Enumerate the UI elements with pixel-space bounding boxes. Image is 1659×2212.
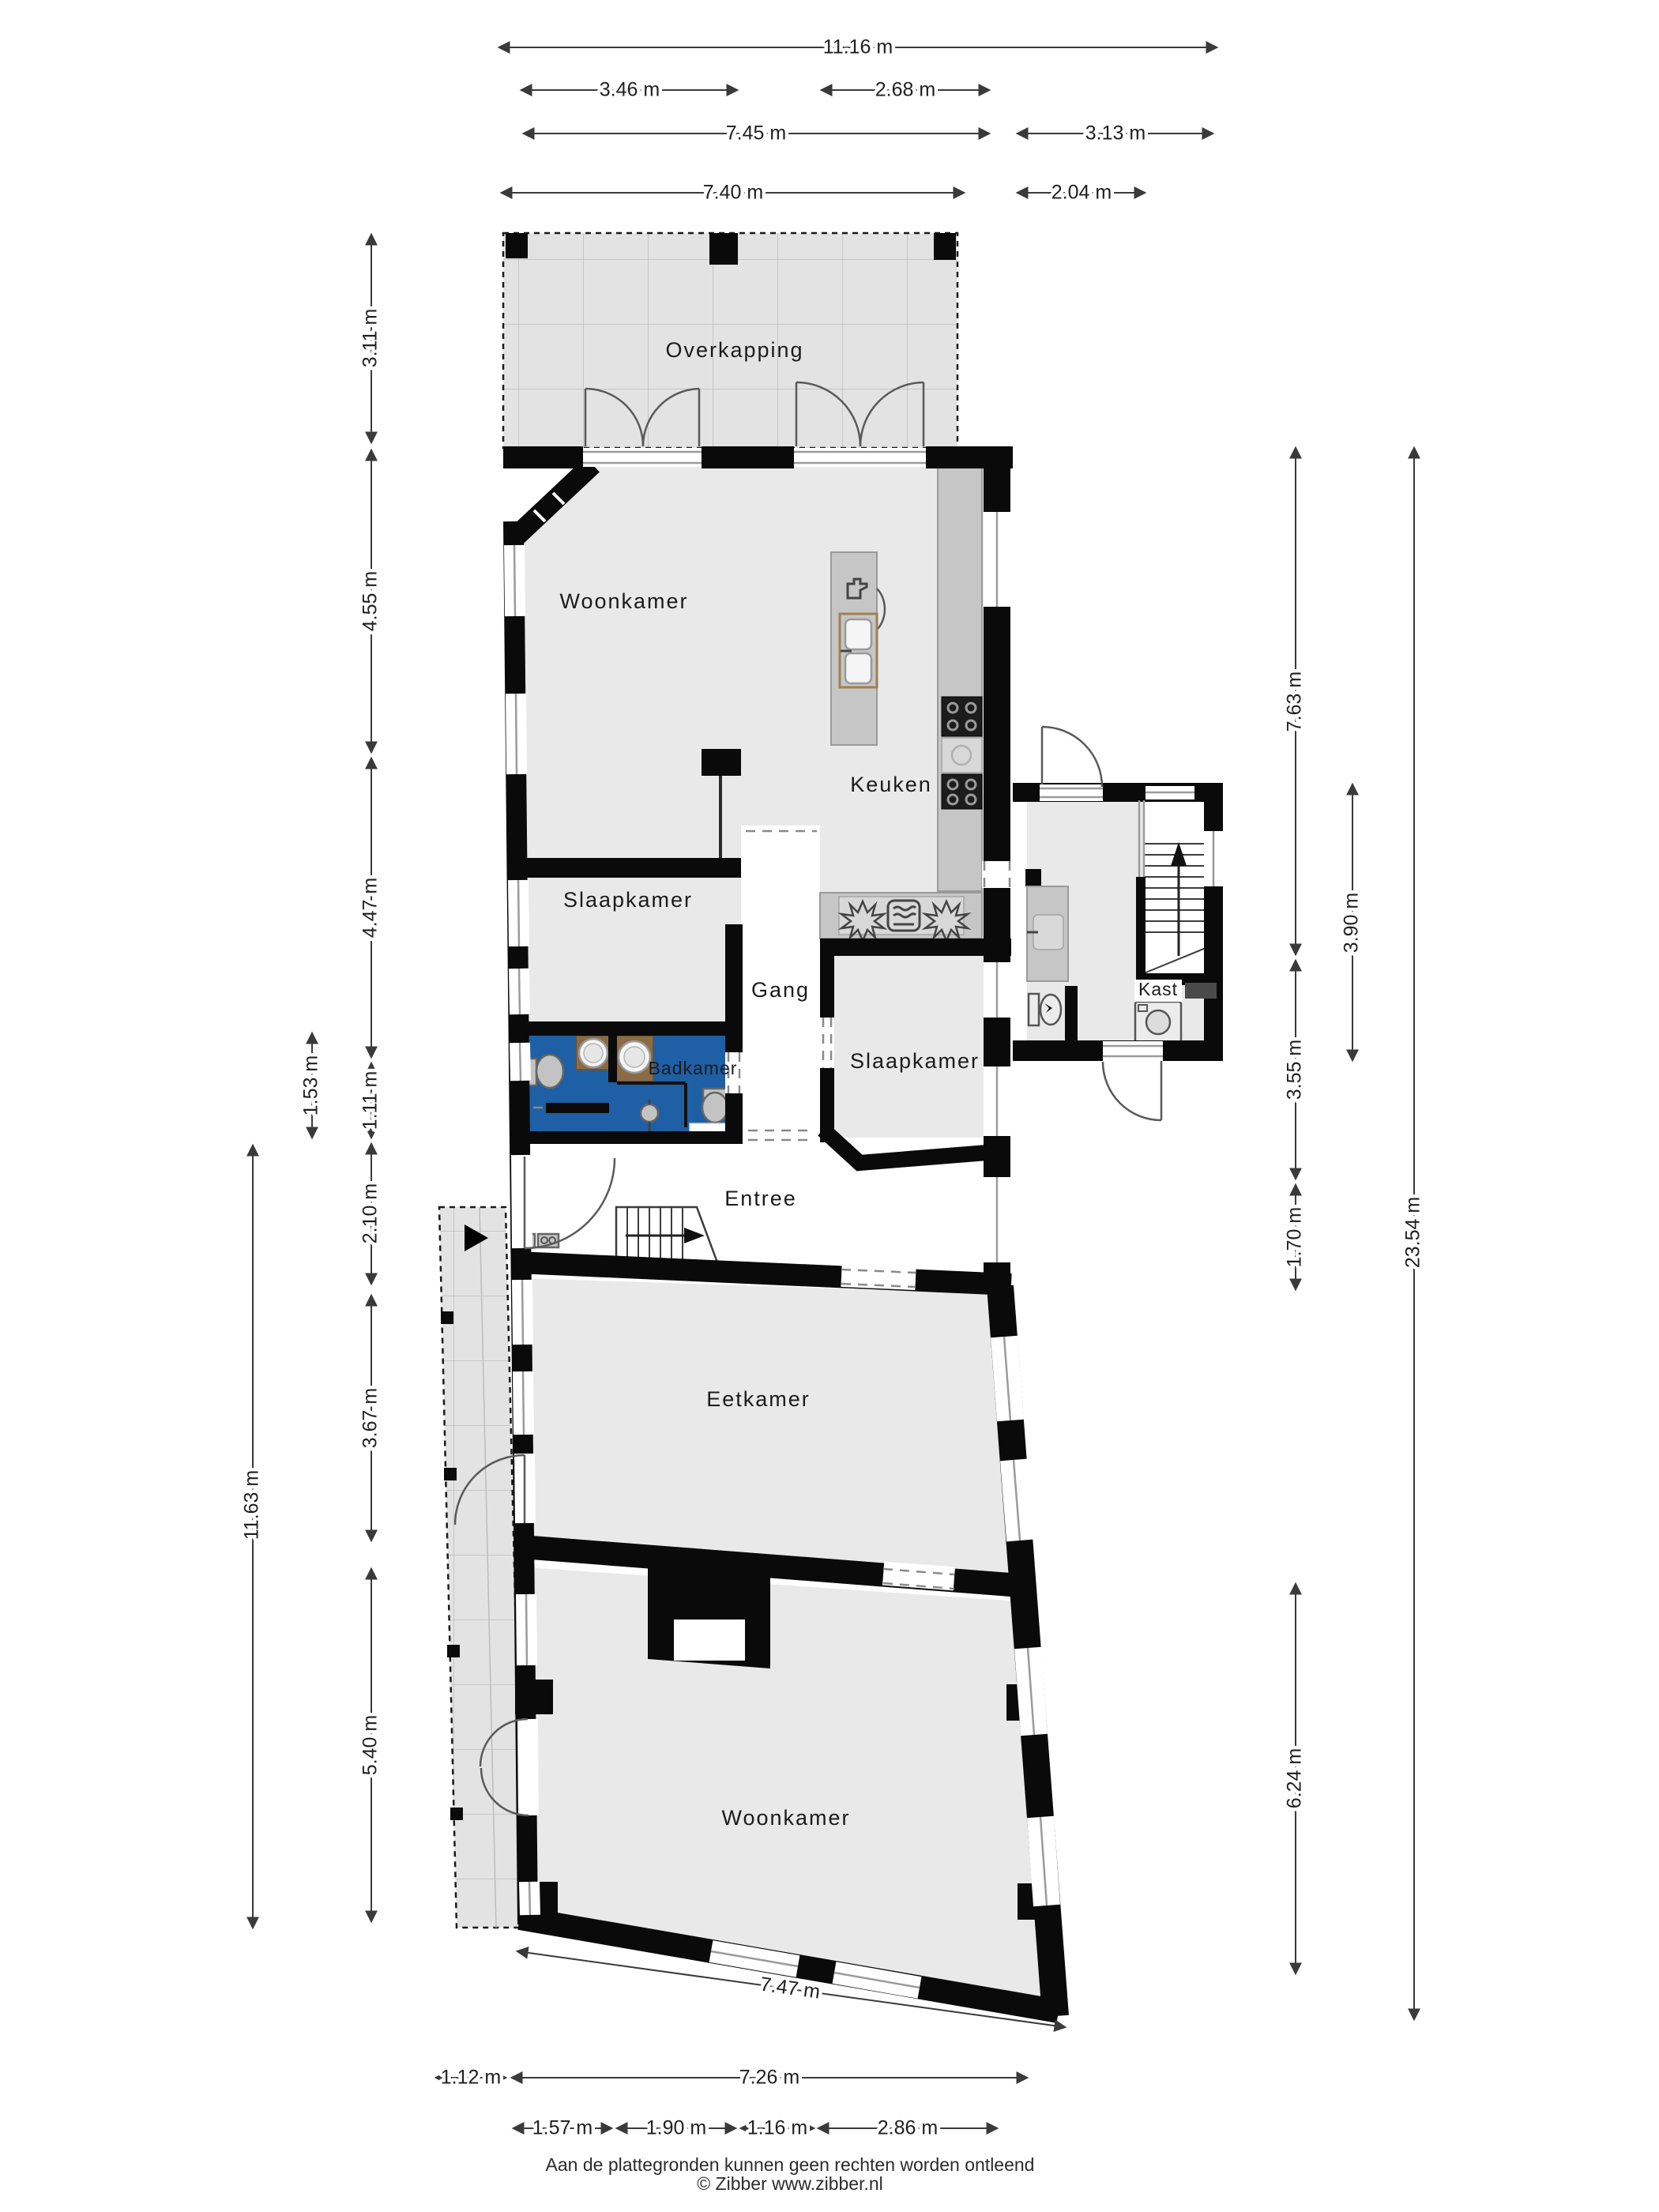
dimension-label: 2.86 m [878, 2117, 938, 2139]
open-passage [984, 861, 1010, 888]
room-label-gang: Gang [751, 978, 810, 1002]
dimension: 7.40 m [502, 182, 964, 204]
window [711, 1951, 798, 1966]
room-label-slaapkamer-links: Slaapkamer [563, 888, 693, 912]
window [520, 1043, 521, 1081]
dimension-label: 7.45 m [726, 122, 786, 145]
dimension: 3.46 m [521, 79, 737, 101]
dimension: 11.63 m [241, 1145, 263, 1928]
window [1028, 1648, 1034, 1735]
toilet-icon [702, 1089, 728, 1123]
dimension: 4.47 m [359, 758, 382, 1057]
disclaimer-text: Aan de plattegronden kunnen geen rechten… [546, 2154, 1035, 2175]
dimension-label: 1.57 m [532, 2117, 592, 2139]
dimension: 1.70 m [1284, 1185, 1306, 1289]
dimension: 2.10 m [359, 1144, 382, 1284]
washing-machine-icon [1135, 1002, 1181, 1043]
dimension: 3.90 m [1341, 784, 1363, 1060]
washbasin-icon [576, 1036, 611, 1070]
counter-sink-icon [942, 738, 982, 773]
dimension-label: 3.13 m [1085, 122, 1145, 145]
dimension-label: 4.47 m [359, 878, 382, 938]
room-label-woonkamer-boven: Woonkamer [559, 589, 688, 613]
room-label-entree: Entree [724, 1187, 797, 1210]
dimension: 1.12 m [436, 2067, 506, 2089]
dimension: 2.86 m [818, 2117, 997, 2139]
dimension-label: 11.63 m [241, 1470, 263, 1540]
dimension: 1.16 m [741, 2117, 814, 2139]
dimension-label: 6.24 m [1284, 1748, 1306, 1808]
open-passage [748, 1128, 811, 1142]
dimension-label: 1.12 m [441, 2067, 501, 2089]
door-opening [820, 1018, 834, 1068]
canopy-post [709, 233, 738, 265]
kitchen-island [831, 552, 885, 745]
dimension: 3.55 m [1284, 961, 1306, 1179]
window [1014, 1460, 1020, 1540]
back-door [1103, 1041, 1163, 1120]
porch-post [450, 1808, 463, 1820]
room-label-kast: Kast [1138, 979, 1178, 999]
dimension-label: 2.68 m [875, 79, 935, 101]
dimension: 7.26 m [512, 2067, 1027, 2089]
window [1040, 1817, 1047, 1905]
kitchen-counter-bottom [820, 893, 982, 941]
window [514, 545, 515, 616]
stairs-annex [1144, 842, 1213, 975]
dimension-label: 1.90 m [646, 2117, 706, 2139]
dimension-label: 7.40 m [703, 182, 763, 204]
canopy-post [506, 233, 528, 258]
room-label-slaapkamer-rechts: Slaapkamer [850, 1049, 980, 1073]
window [834, 1973, 920, 1988]
dimension-label: 1.70 m [1284, 1207, 1306, 1267]
dimension: 11.16 m [499, 36, 1217, 58]
dimension-label: 5.40 m [359, 1715, 382, 1775]
room-label-overkapping: Overkapping [665, 338, 803, 362]
copyright-text: © Zibber www.zibber.nl [697, 2173, 883, 2194]
dimension-label: 1.11 m [359, 1071, 382, 1130]
canopy-post [934, 233, 956, 260]
back-door [1040, 727, 1103, 801]
cooktop-icon [942, 697, 982, 736]
dimension-label: 4.55 m [359, 571, 382, 631]
dimension: 1.90 m [617, 2117, 735, 2139]
footer: Aan de plattegronden kunnen geen rechten… [546, 2154, 1035, 2194]
fireplace-niche [674, 1619, 745, 1661]
dimensions-top: 11.16 m 3.46 m 2.68 m 7.45 m 3.13 m 7.40… [499, 36, 1217, 204]
window [1145, 786, 1194, 799]
dimension: 3.67 m [359, 1296, 382, 1540]
window [522, 1280, 523, 1345]
dimension: 6.24 m [1284, 1584, 1306, 1973]
dimension: 1.11 m [359, 1063, 382, 1138]
porch-post [447, 1645, 460, 1657]
cooktop-icon [942, 774, 982, 809]
room-label-keuken: Keuken [850, 773, 932, 796]
dimension: 3.13 m [1018, 122, 1213, 145]
floor-plan-page: Kast Overkapping Woonkamer Keuken Slaapk… [0, 0, 1659, 2212]
dimension-label: 1.53 m [300, 1055, 322, 1115]
toilet-icon [1029, 994, 1061, 1025]
dimension-label: 7.63 m [1284, 671, 1306, 732]
dimension: 3.11 m [359, 235, 382, 442]
porch-post [444, 1468, 457, 1480]
kitchen-counter-right [938, 468, 982, 891]
porch-post [441, 1311, 453, 1324]
dimension: 5.40 m [359, 1569, 382, 1921]
dimension-label: 3.11 m [359, 309, 382, 368]
open-passage [841, 1265, 916, 1290]
room-label-woonkamer-beneden: Woonkamer [721, 1806, 850, 1830]
dimension: 1.53 m [300, 1033, 322, 1138]
window [516, 694, 517, 774]
window [529, 1882, 530, 1915]
room-label-eetkamer: Eetkamer [706, 1387, 811, 1411]
window [519, 969, 520, 1014]
dimension: 2.04 m [1018, 182, 1145, 204]
window [523, 1371, 524, 1435]
dimensions-right: 7.63 m 3.90 m 3.55 m 1.70 m 23.54 m 6.24… [1284, 448, 1424, 2019]
eetkamer-floor [521, 1278, 1025, 1576]
dimension-label: 2.10 m [359, 1183, 382, 1243]
dimension-label: 2.04 m [1051, 182, 1112, 204]
dimension: 1.57 m [513, 2117, 611, 2139]
window [1004, 1337, 1010, 1420]
dimensions-left: 3.11 m 4.55 m 4.47 m 1.53 m 1.11 m 2.10 … [241, 235, 382, 1928]
floor-plan: Kast Overkapping Woonkamer Keuken Slaapk… [0, 0, 1659, 2212]
window [526, 1594, 527, 1665]
dimension-label: 3.90 m [1341, 893, 1363, 953]
dimension: 2.68 m [822, 79, 989, 101]
room-label-badkamer: Badkamer [649, 1058, 738, 1078]
dimension: 23.54 m [1402, 448, 1424, 2019]
dimension-label: 7.26 m [739, 2067, 799, 2089]
dimension: 7.63 m [1284, 448, 1306, 954]
porch-veranda [439, 1207, 523, 1928]
dimension: 4.55 m [359, 450, 382, 752]
dimension-label: 3.46 m [600, 79, 660, 101]
toilet-icon [526, 1055, 563, 1088]
dimension-label: 11.16 m [823, 36, 893, 58]
window [518, 880, 519, 946]
dimension: 7.45 m [524, 122, 989, 145]
dimension-label: 1.16 m [747, 2117, 807, 2139]
dimension-label: 3.67 m [359, 1388, 382, 1448]
dimension-label: 23.54 m [1402, 1197, 1424, 1268]
dimension-label: 3.55 m [1284, 1040, 1306, 1100]
